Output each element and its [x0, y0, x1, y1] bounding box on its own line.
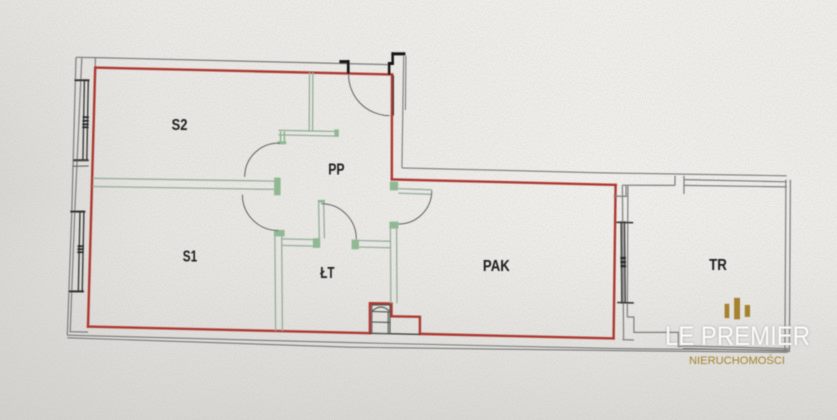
- svg-text:PAK: PAK: [483, 258, 510, 275]
- svg-text:ŁT: ŁT: [320, 265, 334, 282]
- svg-text:PP: PP: [328, 161, 345, 178]
- svg-text:TR: TR: [709, 257, 727, 274]
- svg-text:S2: S2: [172, 117, 188, 134]
- svg-text:LE PREMIER: LE PREMIER: [665, 321, 810, 351]
- svg-text:NIERUCHOMOŚCI: NIERUCHOMOŚCI: [689, 354, 785, 367]
- svg-text:S1: S1: [183, 249, 197, 266]
